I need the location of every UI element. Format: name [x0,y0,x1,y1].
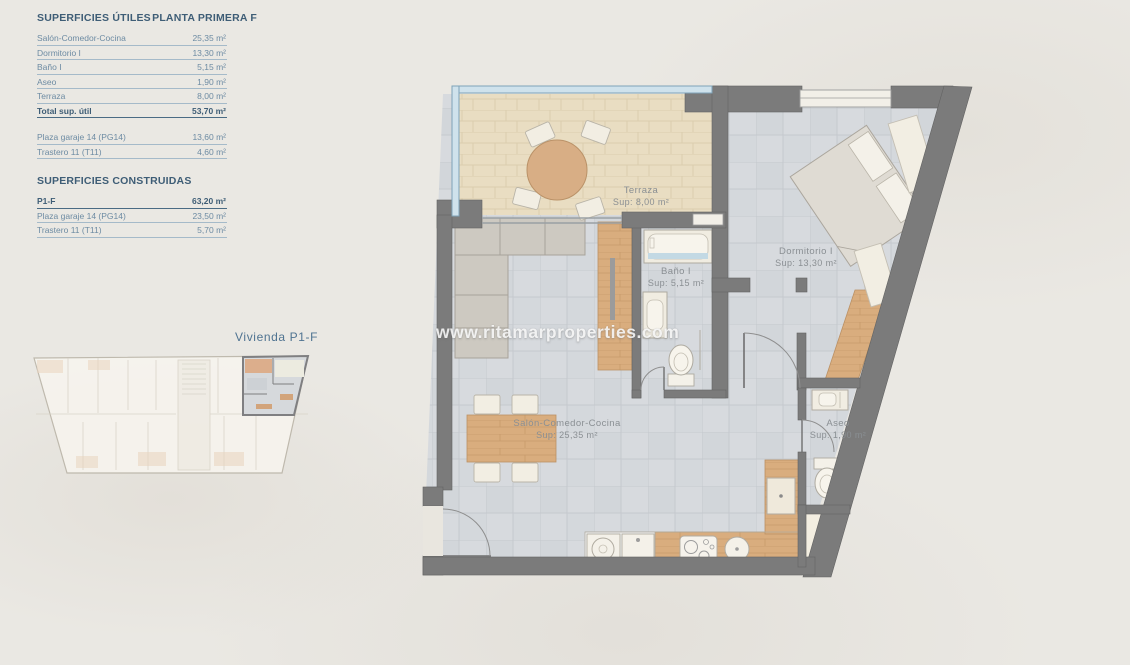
wall-bedroom-bottom-left [712,278,750,292]
room-area: Sup: 1,90 m² [810,430,866,442]
wall-aseo-top [798,378,860,388]
terrace-floor [458,94,712,215]
bath-window [693,214,723,225]
tv [610,258,615,320]
room-name: Dormitorio I [775,246,837,258]
terrace-glass-top [452,86,712,93]
room-area: Sup: 5,15 m² [648,278,704,290]
wall-bedroom-bottom-stub [796,278,807,292]
wall-left-upper [437,215,452,490]
wall-bottom [423,557,815,575]
side-basin [767,478,795,514]
room-name: Aseo [810,418,866,430]
bathroom-toilet [668,345,694,386]
room-label-aseo: AseoSup: 1,90 m² [810,418,866,442]
room-label-dormitorio: Dormitorio ISup: 13,30 m² [775,246,837,270]
room-area: Sup: 8,00 m² [613,197,669,209]
room-name: Salón-Comedor-Cocina [513,418,620,430]
wall-left-lower-a [423,487,443,506]
wall-aseo-left-b [798,452,806,510]
bathtub [644,230,712,263]
floor-plan-page: { "panel": { "title_left": "SUPERFICIES … [0,0,1130,665]
wall-bath-bottom-b [664,390,726,398]
room-label-bano: Baño ISup: 5,15 m² [648,266,704,290]
terrace-glass-left [452,86,459,216]
room-area: Sup: 25,35 m² [513,430,620,442]
room-name: Terraza [613,185,669,197]
wall-bedroom-left [712,86,728,398]
wall-aseo-left-a [798,388,806,420]
terrace-table [527,140,587,200]
wall-bath-bottom-a [632,390,641,398]
room-label-salon: Salón-Comedor-CocinaSup: 25,35 m² [513,418,620,442]
watermark: www.ritamarproperties.com [436,322,679,343]
room-label-terraza: TerrazaSup: 8,00 m² [613,185,669,209]
room-area: Sup: 13,30 m² [775,258,837,270]
bedroom-window [800,90,891,107]
wall-bath-left [632,226,641,398]
wall-shaft-left [798,505,806,567]
room-name: Baño I [648,266,704,278]
aseo-sink [812,390,848,410]
